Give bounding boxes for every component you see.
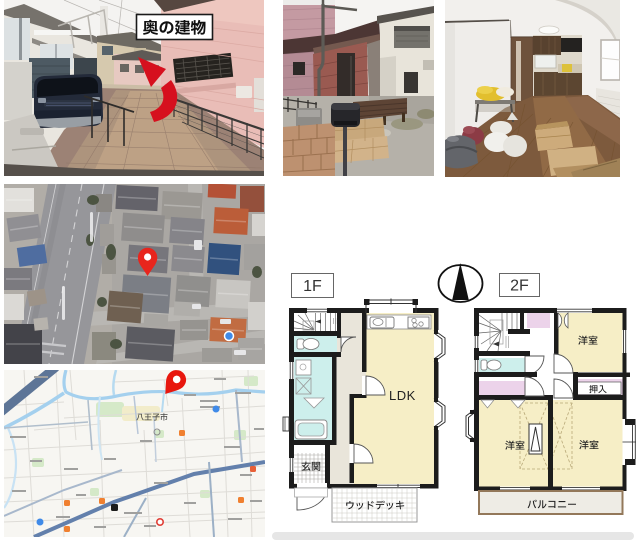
svg-text:2F: 2F [510,278,529,295]
svg-text:1F: 1F [303,278,322,295]
svg-text:LDK: LDK [389,388,416,403]
